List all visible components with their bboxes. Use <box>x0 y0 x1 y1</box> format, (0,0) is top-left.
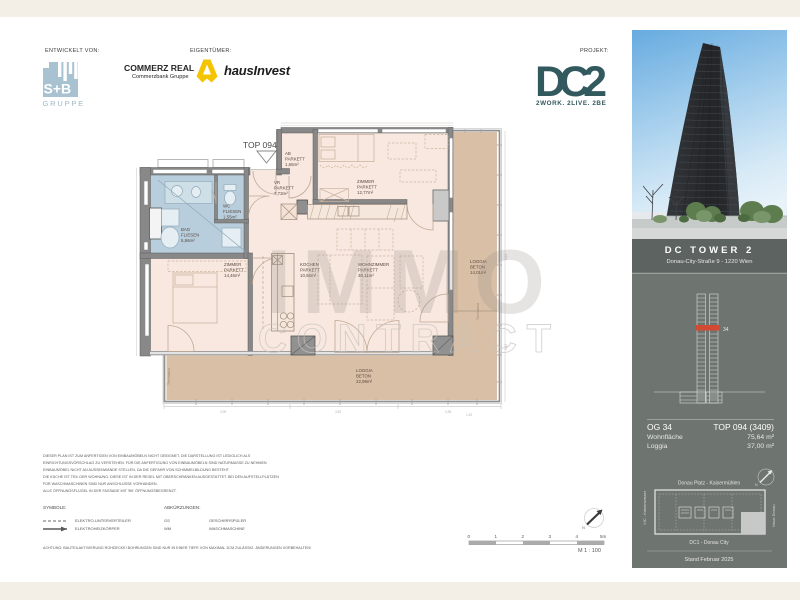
svg-text:LOGGIA: LOGGIA <box>356 368 373 373</box>
svg-text:PARKETT: PARKETT <box>274 186 294 191</box>
svg-text:Stand Februar 2025: Stand Februar 2025 <box>685 557 734 563</box>
svg-text:5m: 5m <box>600 534 607 539</box>
svg-text:7,73m²: 7,73m² <box>274 191 288 196</box>
svg-text:3: 3 <box>549 534 552 539</box>
svg-text:PARKETT: PARKETT <box>285 157 305 162</box>
svg-text:1: 1 <box>495 534 498 539</box>
svg-text:TOP 094: TOP 094 <box>243 140 277 150</box>
svg-text:3,52: 3,52 <box>335 410 341 414</box>
svg-text:5,96m²: 5,96m² <box>181 238 195 243</box>
svg-text:VR: VR <box>274 180 280 185</box>
svg-text:1,55m²: 1,55m² <box>223 215 237 220</box>
svg-text:1,65m²: 1,65m² <box>285 162 299 167</box>
svg-text:ZIMMER: ZIMMER <box>224 262 241 267</box>
svg-text:FLIESEN: FLIESEN <box>223 209 241 214</box>
svg-text:12,77m²: 12,77m² <box>357 190 374 195</box>
svg-text:ZIMMER: ZIMMER <box>357 179 374 184</box>
svg-text:PARKETT: PARKETT <box>224 268 244 273</box>
svg-text:FLIESEN: FLIESEN <box>181 233 199 238</box>
svg-text:22,99m²: 22,99m² <box>356 379 373 384</box>
svg-text:Neue Donau: Neue Donau <box>771 505 776 527</box>
svg-text:AB: AB <box>285 151 291 156</box>
svg-text:BAD: BAD <box>181 227 190 232</box>
svg-text:Trennwand: Trennwand <box>167 368 171 385</box>
svg-text:4: 4 <box>576 534 579 539</box>
svg-text:34: 34 <box>723 327 729 333</box>
svg-text:N: N <box>755 483 758 487</box>
svg-text:BETON: BETON <box>356 374 371 379</box>
svg-text:VIC - Kaiserwasser: VIC - Kaiserwasser <box>642 490 647 525</box>
svg-text:WC: WC <box>223 204 230 209</box>
svg-text:3,36: 3,36 <box>445 410 451 414</box>
svg-text:2: 2 <box>522 534 525 539</box>
svg-text:Donau Platz - Kaisermühlen: Donau Platz - Kaisermühlen <box>678 481 740 487</box>
svg-text:DC1 - Donau City: DC1 - Donau City <box>689 540 729 546</box>
svg-text:M 1 : 100: M 1 : 100 <box>578 548 601 554</box>
svg-text:4,09: 4,09 <box>220 410 226 414</box>
svg-text:1,20: 1,20 <box>466 413 472 417</box>
svg-text:PARKETT: PARKETT <box>357 185 377 190</box>
svg-text:N: N <box>582 525 585 530</box>
svg-text:0: 0 <box>468 534 471 539</box>
svg-text:14,46m²: 14,46m² <box>224 273 241 278</box>
